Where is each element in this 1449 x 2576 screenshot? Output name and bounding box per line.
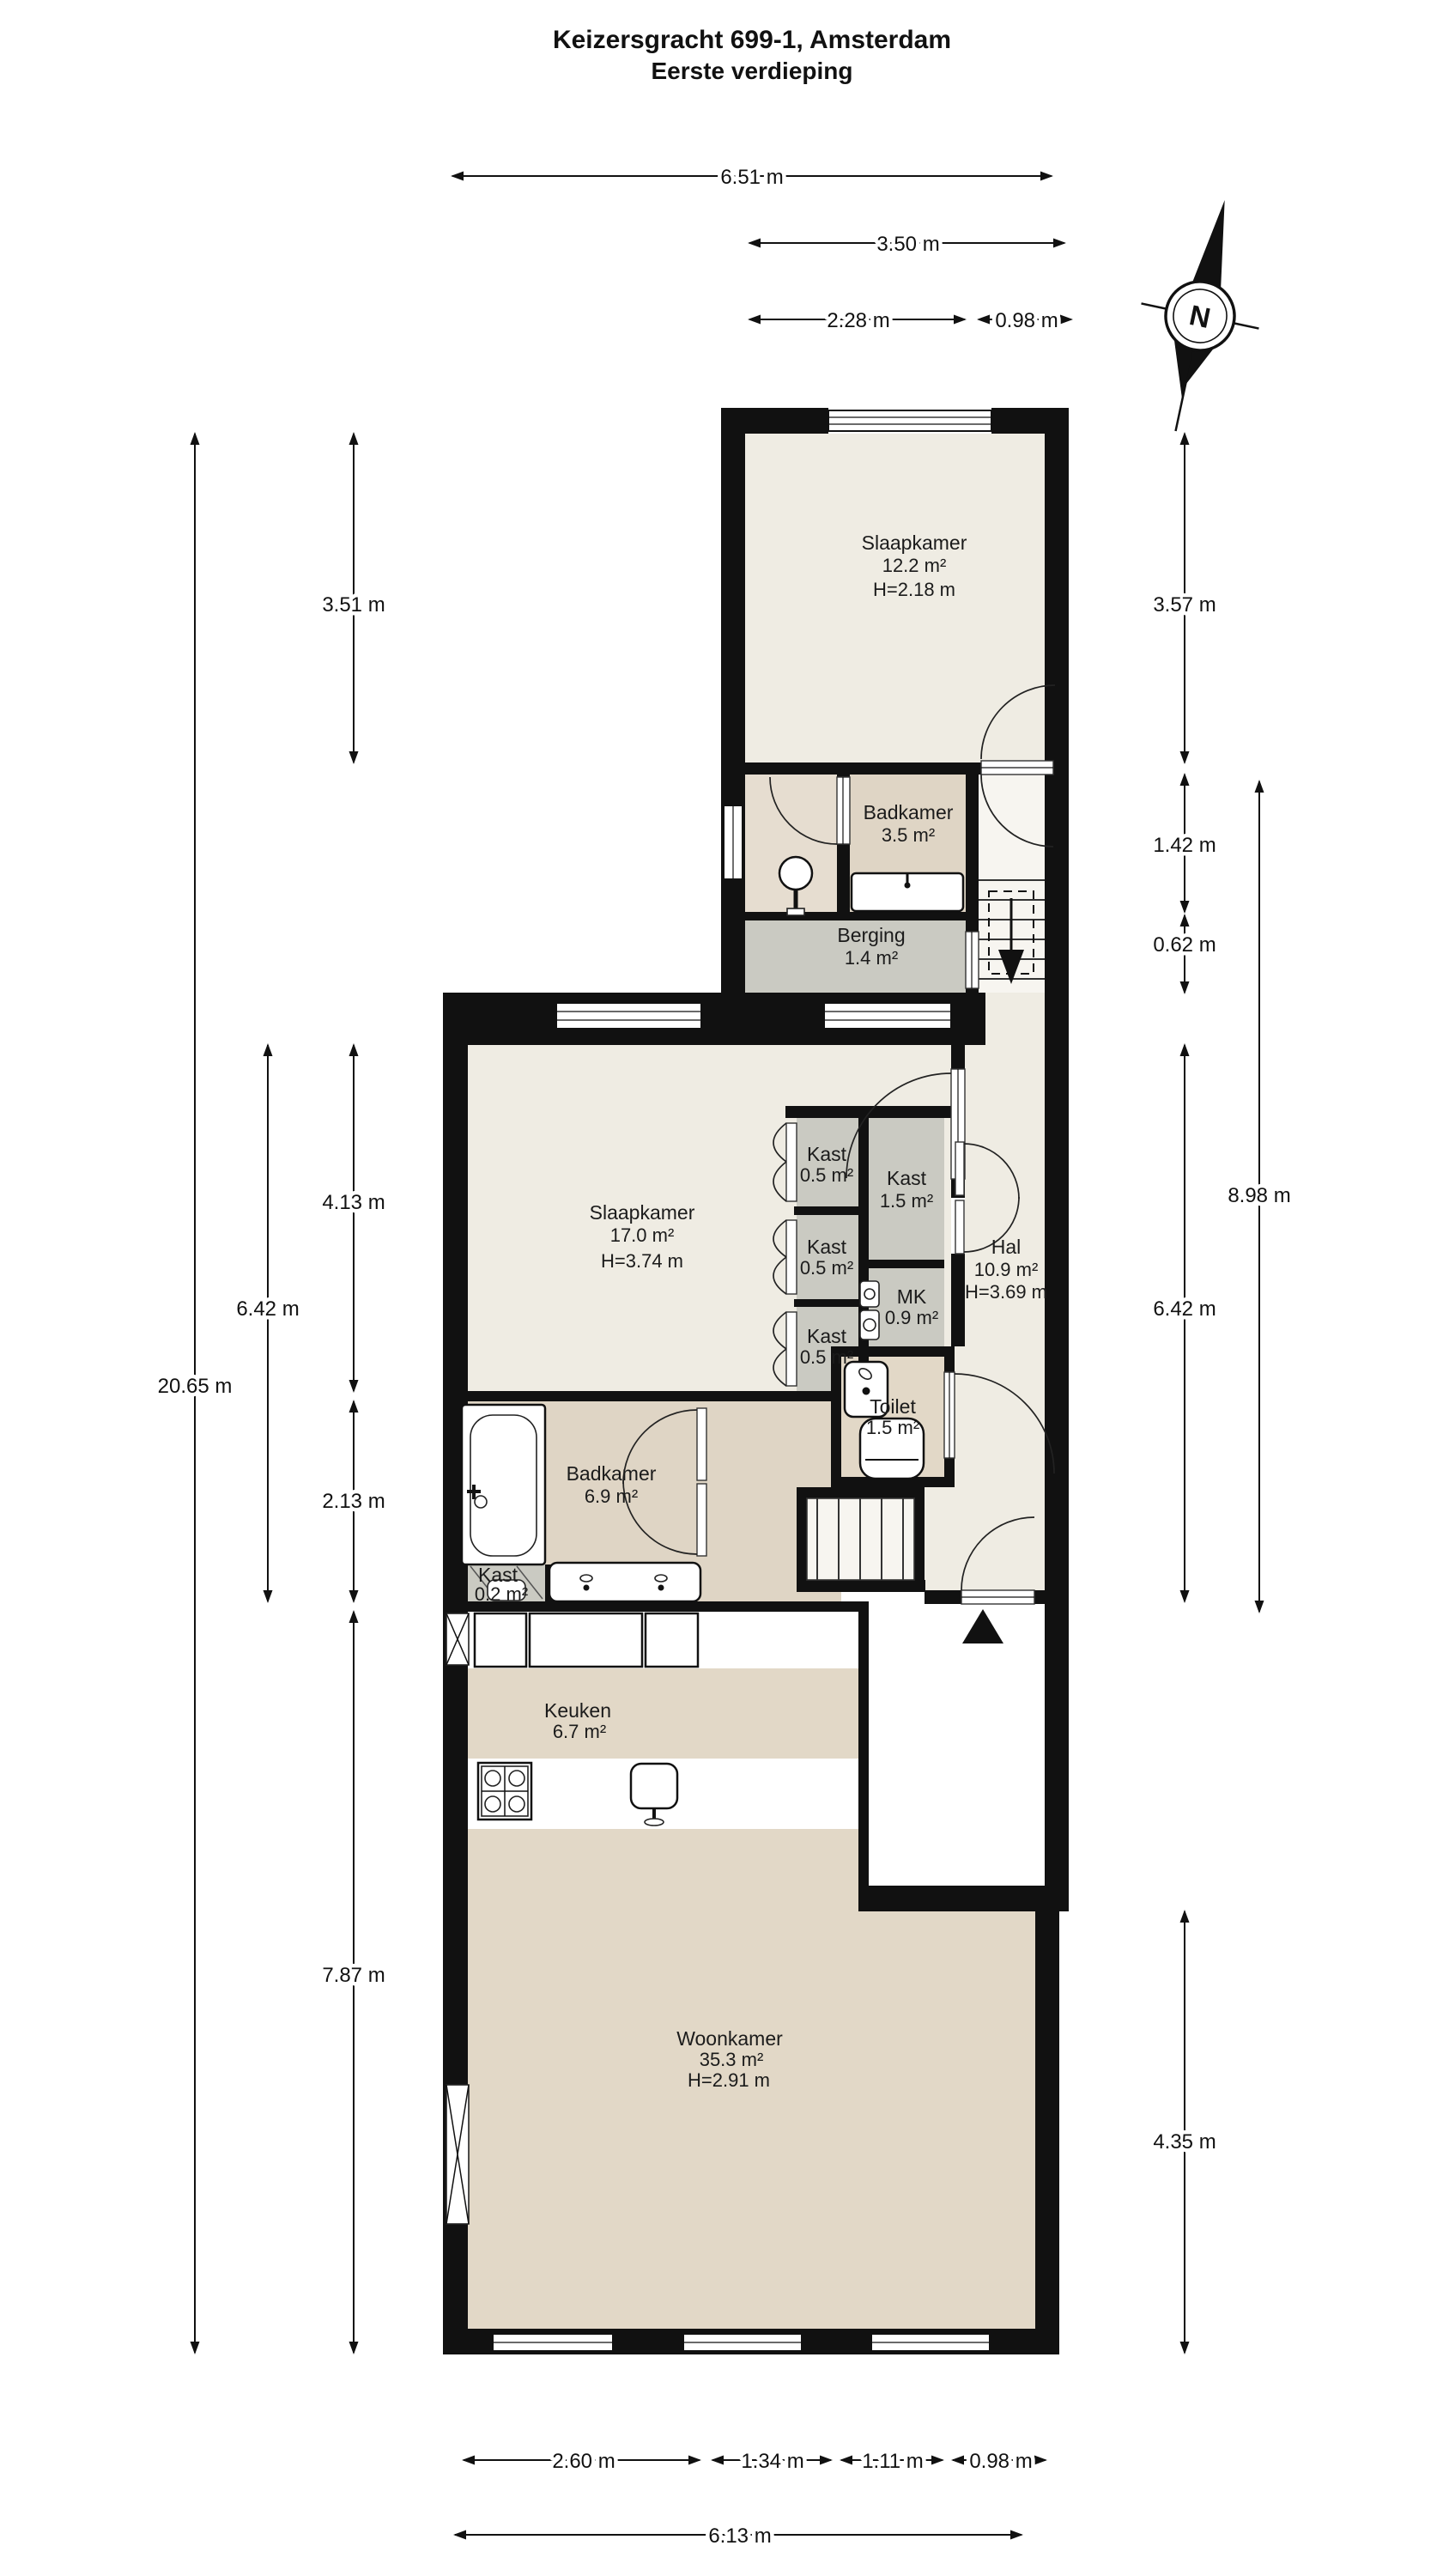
window-woonkamer-1 (493, 2334, 613, 2351)
label-badkamer-boven: Badkamer (864, 801, 954, 823)
dim-bottom-total: 6.13 m (708, 2524, 771, 2548)
cupboard-x-woonkamer-icon (446, 2085, 469, 2224)
dim-right-living: 4.35 m (1153, 2130, 1216, 2154)
window-woonkamer-3 (871, 2334, 990, 2351)
label-kast-groot: Kast (887, 1167, 927, 1189)
dim-left-top: 3.51 m (322, 593, 385, 617)
label-kast-klein-area: 0.2 m² (475, 1583, 528, 1605)
bathtub-icon (462, 1405, 545, 1564)
label-hal-height: H=3.69 m (965, 1281, 1047, 1303)
stove-icon (478, 1763, 531, 1820)
label-mk: MK (897, 1285, 927, 1308)
dim-right-middle: 6.42 m (1153, 1297, 1216, 1321)
window-slaapkamer-links (556, 1003, 701, 1029)
dim-bottom-w3: 1.11 m (862, 2450, 924, 2473)
dim-right-bath: 1.42 m (1153, 834, 1216, 857)
floor-keuken (468, 1668, 858, 1759)
label-kast2-area: 0.5 m² (800, 1257, 853, 1279)
dim-top-total: 6.51 m (720, 166, 783, 189)
label-berging-area: 1.4 m² (845, 947, 898, 969)
label-slaapkamer-boven: Slaapkamer (862, 532, 967, 554)
cupboard-x-kitchen-icon (446, 1613, 469, 1665)
label-toilet-area: 1.5 m² (866, 1417, 919, 1438)
label-kast3-area: 0.5 m² (800, 1346, 853, 1368)
floor-hal-midden (955, 1346, 1045, 1487)
dim-right-upper-total: 8.98 m (1228, 1184, 1290, 1207)
boiler-icons (860, 1281, 879, 1340)
compass: N (1117, 187, 1283, 443)
label-toilet: Toilet (870, 1395, 916, 1418)
label-hal-area: 10.9 m² (974, 1259, 1039, 1280)
label-slaapkamer: Slaapkamer (590, 1201, 695, 1224)
dim-left-total: 20.65 m (158, 1375, 233, 1398)
window-woonkamer-2 (683, 2334, 802, 2351)
door-berging (966, 932, 979, 988)
washstand-icon (549, 1563, 700, 1601)
floorplan-canvas: Keizersgracht 699-1, Amsterdam Eerste ve… (0, 0, 1449, 2576)
label-keuken: Keuken (544, 1699, 611, 1722)
dim-top-left-part: 2.28 m (827, 309, 889, 332)
label-slaapkamer-height: H=3.74 m (601, 1250, 683, 1272)
label-slaapkamer-boven-height: H=2.18 m (873, 579, 955, 600)
dim-left-middle: 6.42 m (236, 1297, 299, 1321)
label-badkamer-boven-area: 3.5 m² (882, 824, 935, 846)
label-mk-area: 0.9 m² (885, 1307, 938, 1328)
dim-top-block: 3.50 m (876, 233, 939, 256)
label-kast1-area: 0.5 m² (800, 1164, 853, 1186)
dim-right-storage: 0.62 m (1153, 933, 1216, 957)
dim-bottom-w2: 1.34 m (741, 2450, 803, 2473)
dim-left-bedroom: 4.13 m (322, 1191, 385, 1214)
label-keuken-area: 6.7 m² (553, 1721, 606, 1742)
label-kast3: Kast (807, 1325, 847, 1347)
label-woonkamer: Woonkamer (676, 2027, 783, 2050)
dim-left-bathroom: 2.13 m (322, 1490, 385, 1513)
kitchen-cabinets-icon (475, 1613, 698, 1667)
label-slaapkamer-area: 17.0 m² (610, 1224, 675, 1246)
label-badkamer-area: 6.9 m² (585, 1485, 638, 1507)
label-slaapkamer-boven-area: 12.2 m² (882, 555, 947, 576)
label-kast2: Kast (807, 1236, 847, 1258)
label-hal: Hal (991, 1236, 1022, 1258)
dim-top-right-part: 0.98 m (995, 309, 1058, 332)
label-kast1: Kast (807, 1143, 847, 1165)
dim-right-top: 3.57 m (1153, 593, 1216, 617)
title-line2: Eerste verdieping (652, 58, 853, 84)
dim-bottom-w4: 0.98 m (969, 2450, 1032, 2473)
label-berging: Berging (837, 924, 905, 946)
bathtub-small-icon (852, 873, 963, 911)
window-slaapkamer-boven (828, 410, 991, 431)
label-kast-groot-area: 1.5 m² (880, 1190, 933, 1212)
window-slaapkamer-rechts (824, 1003, 951, 1029)
label-woonkamer-height: H=2.91 m (688, 2069, 770, 2091)
window-doucheruimte (724, 805, 743, 879)
title-line1: Keizersgracht 699-1, Amsterdam (553, 26, 951, 54)
dim-bottom-w1: 2.60 m (552, 2450, 615, 2473)
dim-left-lower: 7.87 m (322, 1964, 385, 1987)
floor-hal-verbinding (985, 993, 1045, 1045)
entrance-arrow-icon (962, 1609, 1003, 1643)
label-badkamer: Badkamer (567, 1462, 657, 1485)
floor-hal-onder (925, 1487, 1045, 1590)
label-woonkamer-area: 35.3 m² (700, 2049, 764, 2070)
page-title: Keizersgracht 699-1, Amsterdam Eerste ve… (553, 26, 951, 84)
